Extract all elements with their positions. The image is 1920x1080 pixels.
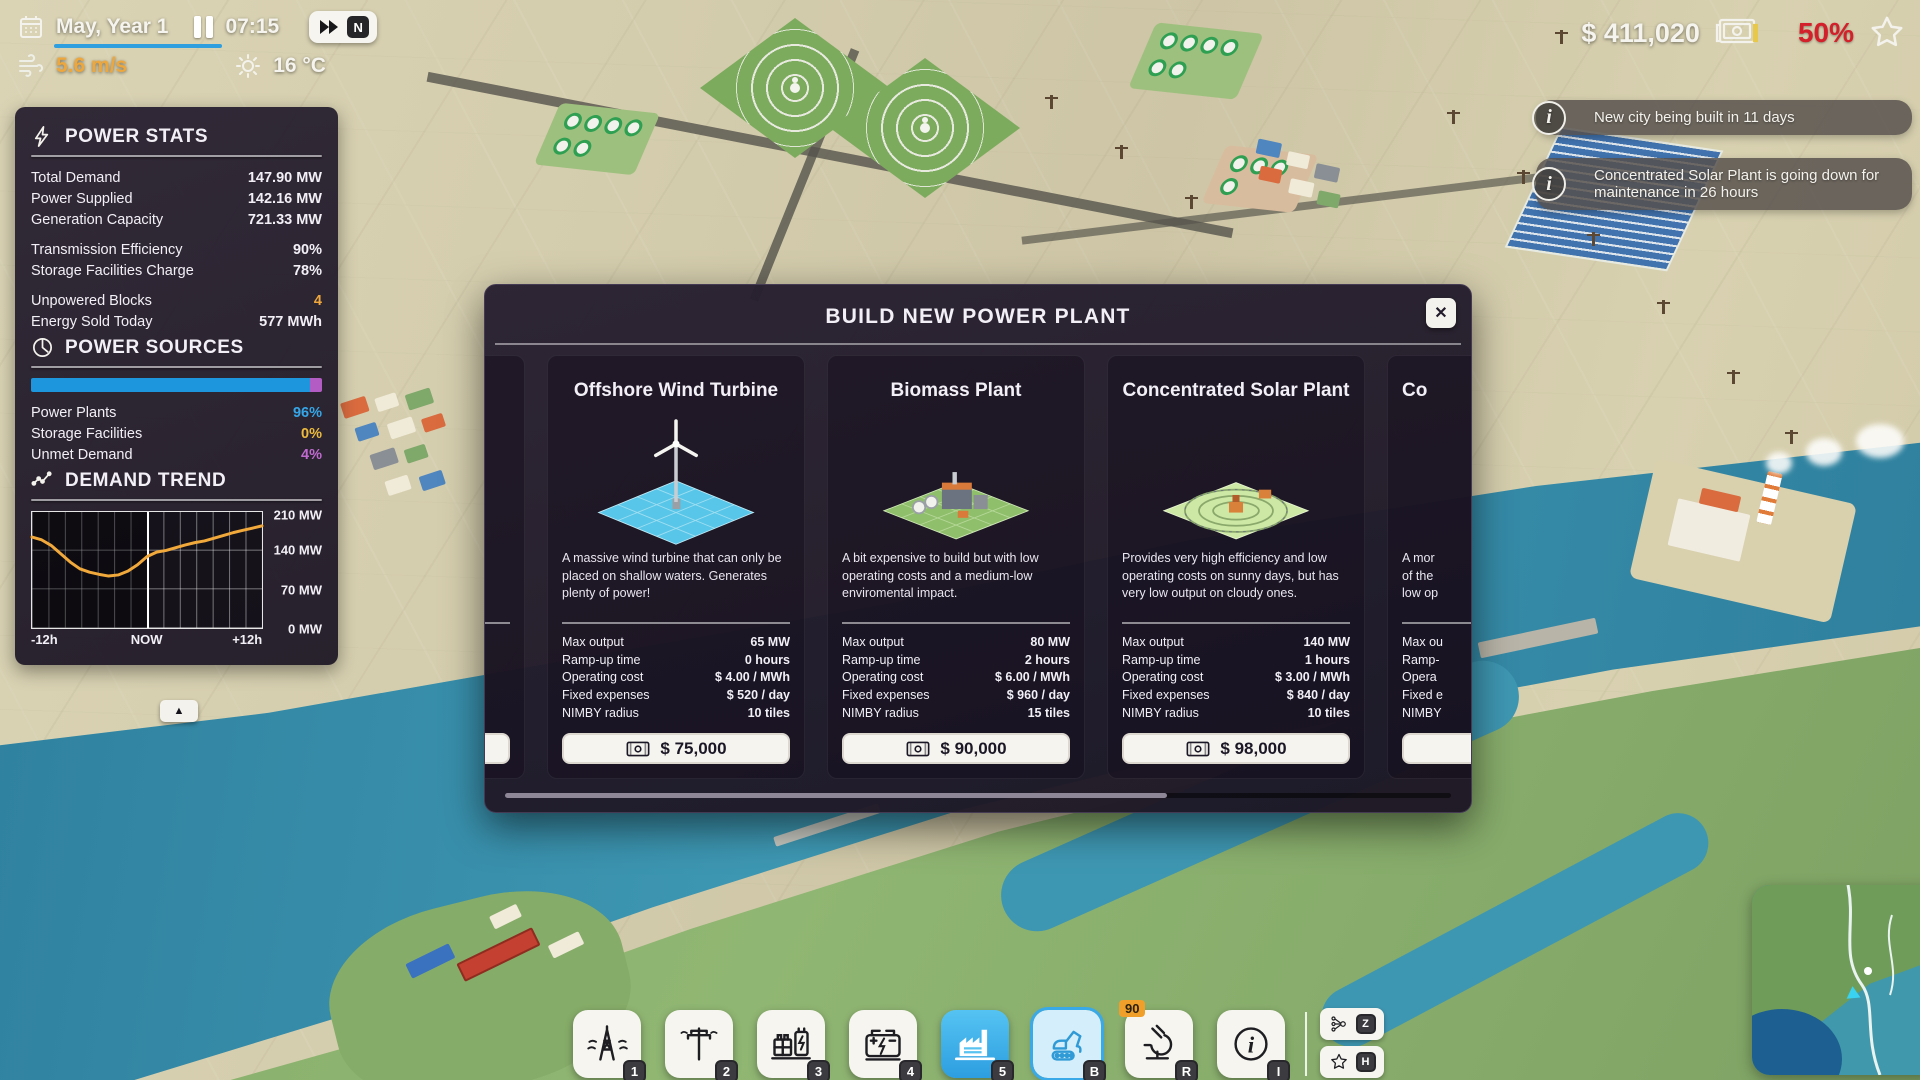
plant-card-partial-left[interactable]	[485, 355, 525, 779]
wind-speed: 5.6 m/s	[56, 54, 127, 78]
divider	[31, 499, 322, 501]
stat-row: Generation Capacity721.33 MW	[31, 209, 322, 230]
hotkey-badge: B	[1083, 1060, 1106, 1080]
source-row: Unmet Demand4%	[31, 444, 322, 465]
demand-trend-header: DEMAND TREND	[31, 469, 322, 492]
buy-button[interactable]: $ 75,000	[562, 733, 790, 764]
star-icon	[1329, 1052, 1349, 1072]
plant-description: Provides very high efficiency and low op…	[1122, 550, 1350, 614]
source-row: Storage Facilities0%	[31, 423, 322, 444]
plant-card-biomass[interactable]: Biomass Plant A bit expensive to bu	[827, 355, 1085, 779]
demand-trend-chart: -12h NOW +12h 210 MW 140 MW 70 MW 0 MW	[31, 511, 322, 649]
price: $ 90,000	[940, 739, 1006, 759]
offshore-wind-art	[562, 414, 790, 546]
buy-button[interactable]	[1402, 733, 1471, 764]
utility-pole	[1560, 30, 1563, 44]
collapse-arrow-icon: ▲	[174, 705, 185, 717]
plant-name: Offshore Wind Turbine	[562, 368, 790, 414]
info-icon: i	[1229, 1022, 1273, 1066]
divider	[31, 366, 322, 368]
panel-title: POWER STATS	[65, 126, 208, 148]
date-underline	[54, 44, 222, 48]
substation-icon	[769, 1022, 813, 1066]
battery-icon	[861, 1022, 905, 1066]
plant-stats: Max ou Ramp- Opera Fixed e NIMBY	[1402, 634, 1471, 722]
hotkey-badge: 5	[991, 1060, 1014, 1080]
network-overlay-icon	[1329, 1014, 1349, 1034]
price: $ 98,000	[1220, 739, 1286, 759]
plant-card-concentrated-solar[interactable]: Concentrated Solar Plant Provides very h…	[1107, 355, 1365, 779]
plant-stats: Max output65 MW Ramp-up time0 hours Oper…	[562, 634, 790, 722]
divider	[31, 155, 322, 157]
utility-pole	[1790, 430, 1793, 444]
transmission-tower-icon	[585, 1022, 629, 1066]
smoke	[1806, 438, 1842, 466]
stat-row: Storage Facilities Charge78%	[31, 260, 322, 281]
divider	[562, 622, 790, 624]
stat-row: Energy Sold Today577 MWh	[31, 311, 322, 332]
utility-pole	[1732, 370, 1735, 384]
factory-icon	[953, 1022, 997, 1066]
plant-description: A bit expensive to build but with low op…	[842, 550, 1070, 614]
power-pole-icon	[677, 1022, 721, 1066]
plant-description: A mor of the low op	[1402, 550, 1471, 614]
speed-hotkey-badge: N	[347, 16, 369, 38]
notification-text: New city being built in 11 days	[1594, 109, 1795, 126]
cash-icon	[1185, 740, 1211, 758]
plant-description: A massive wind turbine that can only be …	[562, 550, 790, 614]
wind-icon	[18, 54, 44, 78]
divider	[1402, 622, 1471, 624]
notification-text: Concentrated Solar Plant is going down f…	[1594, 167, 1879, 201]
utility-pole	[1452, 110, 1455, 124]
hotkey-badge: 1	[623, 1060, 646, 1080]
cash-icon	[625, 740, 651, 758]
toolbar-substation[interactable]: 3	[757, 1010, 825, 1078]
price: $ 75,000	[660, 739, 726, 759]
divider	[842, 622, 1070, 624]
svg-text:i: i	[1248, 1031, 1255, 1057]
topbar-right: $ 411,020 50%	[1581, 14, 1906, 52]
plant-cards-row: Offshore Wind Turbine	[485, 355, 1471, 781]
wind-turbine-icon	[576, 414, 776, 546]
plant-name: Co	[1402, 368, 1471, 414]
toolbar-info[interactable]: i I	[1217, 1010, 1285, 1078]
calendar-icon	[18, 14, 44, 40]
modal-title: BUILD NEW POWER PLANT	[485, 305, 1471, 329]
plant-card-offshore-wind[interactable]: Offshore Wind Turbine	[547, 355, 805, 779]
modal-divider	[495, 343, 1461, 345]
fast-forward-button[interactable]: N	[309, 11, 377, 43]
panel-title: DEMAND TREND	[65, 470, 226, 492]
buy-button[interactable]: $ 90,000	[842, 733, 1070, 764]
hotkey-badge: H	[1356, 1052, 1376, 1072]
hotkey-badge: 3	[807, 1060, 830, 1080]
game-screen: May, Year 1 07:15 N 5.6 m/s 16 °C $ 411,…	[0, 0, 1920, 1080]
chart-x-labels: -12h NOW +12h	[31, 632, 262, 648]
toolbar-power-pole[interactable]: 2	[665, 1010, 733, 1078]
plant-name: Concentrated Solar Plant	[1122, 368, 1350, 414]
modal-close-button[interactable]: ✕	[1426, 298, 1456, 328]
biomass-plant-icon	[856, 414, 1056, 546]
hotkey-badge: 2	[715, 1060, 738, 1080]
notification-toast[interactable]: i New city being built in 11 days	[1536, 100, 1912, 135]
power-stats-panel: POWER STATS Total Demand147.90 MW Power …	[15, 107, 338, 665]
build-power-plant-modal: BUILD NEW POWER PLANT ✕ Offshore Wind Tu…	[484, 284, 1472, 813]
game-time: 07:15	[225, 15, 279, 39]
notification-toast[interactable]: i Concentrated Solar Plant is going down…	[1536, 158, 1912, 210]
toolbar-transmission-lines[interactable]: 1	[573, 1010, 641, 1078]
hotkey-badge: Z	[1356, 1014, 1376, 1034]
divider	[1122, 622, 1350, 624]
cards-scrollbar[interactable]	[505, 793, 1451, 798]
sun-icon	[235, 53, 261, 79]
toolbar-research[interactable]: 90 R	[1125, 1010, 1193, 1078]
stat-row: Power Supplied142.16 MW	[31, 188, 322, 209]
fast-forward-icon	[317, 17, 341, 37]
cash-icon	[905, 740, 931, 758]
lightning-icon	[31, 125, 54, 148]
smoke	[1766, 452, 1792, 474]
info-icon: i	[1532, 101, 1566, 135]
utility-pole	[1592, 232, 1595, 246]
panel-collapse-button[interactable]: ▲	[160, 700, 198, 722]
approval-rating: 50%	[1798, 17, 1854, 49]
toolbar-overlays[interactable]: Z	[1320, 1008, 1384, 1040]
buy-button[interactable]: $ 98,000	[1122, 733, 1350, 764]
source-row: Power Plants96%	[31, 402, 322, 423]
toolbar-battery-storage[interactable]: 4	[849, 1010, 917, 1078]
utility-pole	[1522, 170, 1525, 184]
hotkey-badge: I	[1267, 1060, 1290, 1080]
utility-pole	[1120, 145, 1123, 159]
minimap-marker	[1864, 967, 1872, 975]
smoke	[1856, 424, 1904, 458]
microscope-icon	[1137, 1022, 1181, 1066]
game-date: May, Year 1	[56, 15, 168, 39]
chart-y-labels: 210 MW 140 MW 70 MW 0 MW	[262, 511, 322, 629]
pie-chart-icon	[31, 336, 54, 359]
plant-card-partial-right[interactable]: Co A mor of the low op Max ou Ramp- Oper…	[1387, 355, 1471, 779]
concentrated-solar-art	[1122, 414, 1350, 546]
temperature: 16 °C	[273, 54, 326, 78]
panel-title: POWER SOURCES	[65, 337, 244, 359]
research-points-badge: 90	[1119, 1000, 1145, 1017]
plant-name: Biomass Plant	[842, 368, 1070, 414]
toolbar-bulldozer[interactable]: B	[1033, 1010, 1101, 1078]
topbar-left: May, Year 1 07:15 N 5.6 m/s 16 °C	[18, 12, 377, 84]
excavator-icon	[1045, 1022, 1089, 1066]
utility-pole	[1050, 95, 1053, 109]
plant-stats: Max output80 MW Ramp-up time2 hours Oper…	[842, 634, 1070, 722]
minimap[interactable]	[1752, 885, 1920, 1075]
scrollbar-handle[interactable]	[505, 793, 1167, 798]
demand-line-series	[32, 526, 262, 576]
pause-button[interactable]	[194, 16, 213, 38]
power-stats-header: POWER STATS	[31, 125, 322, 148]
trend-line-icon	[31, 469, 54, 492]
stat-row: Unpowered Blocks4	[31, 290, 322, 311]
power-sources-bar	[31, 378, 322, 392]
stat-row: Total Demand147.90 MW	[31, 167, 322, 188]
chart-plot-area	[31, 511, 263, 629]
star-rating-icon[interactable]	[1868, 14, 1906, 52]
utility-pole	[1190, 195, 1193, 209]
buy-button[interactable]	[485, 733, 510, 764]
toolbar-divider	[1305, 1012, 1307, 1076]
hotkey-badge: R	[1175, 1060, 1198, 1080]
power-sources-header: POWER SOURCES	[31, 336, 322, 359]
utility-pole	[1662, 300, 1665, 314]
cash-icon	[1714, 17, 1758, 49]
solar-plant-icon	[1136, 414, 1336, 546]
info-icon: i	[1532, 167, 1566, 201]
stat-row: Transmission Efficiency90%	[31, 239, 322, 260]
close-icon: ✕	[1434, 303, 1447, 323]
toolbar-power-plants[interactable]: 5	[941, 1010, 1009, 1078]
toolbar-favorites[interactable]: H	[1320, 1046, 1384, 1078]
plant-stats: Max output140 MW Ramp-up time1 hours Ope…	[1122, 634, 1350, 722]
money-balance: $ 411,020	[1581, 18, 1700, 49]
biomass-art	[842, 414, 1070, 546]
hotkey-badge: 4	[899, 1060, 922, 1080]
